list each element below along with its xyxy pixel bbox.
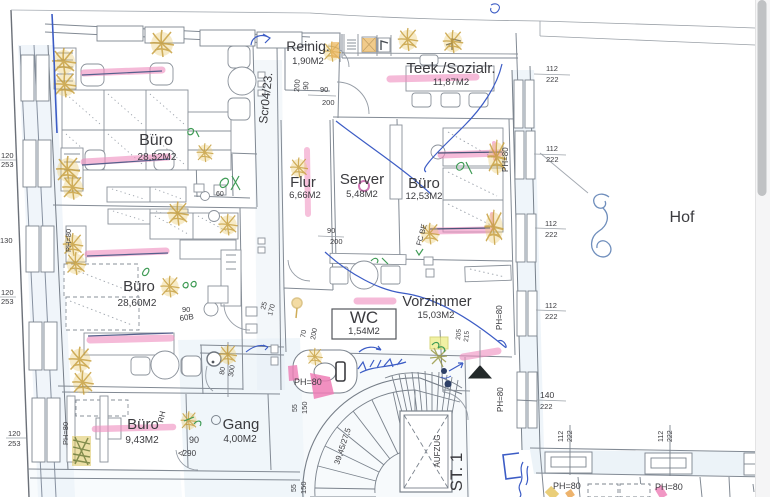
svg-text:6,66M2: 6,66M2: [289, 190, 321, 201]
svg-text:60: 60: [216, 191, 224, 198]
svg-text:80: 80: [219, 366, 227, 375]
svg-text:130: 130: [0, 236, 13, 245]
svg-text:4,00M2: 4,00M2: [223, 434, 257, 445]
svg-text:Büro: Büro: [139, 132, 173, 149]
svg-text:112: 112: [558, 431, 565, 442]
svg-text:90: 90: [301, 81, 311, 90]
svg-text:11,87M2: 11,87M2: [433, 77, 469, 88]
svg-text:PH=80: PH=80: [64, 229, 73, 252]
svg-text:205: 205: [455, 328, 463, 340]
svg-text:140: 140: [540, 390, 554, 400]
svg-text:Büro: Büro: [127, 416, 159, 433]
svg-text:Teek./Sozialr.: Teek./Sozialr.: [406, 60, 495, 77]
svg-text:222: 222: [546, 75, 559, 84]
svg-text:120: 120: [1, 288, 14, 297]
svg-text:9,43M2: 9,43M2: [125, 435, 159, 446]
svg-text:Büro: Büro: [123, 278, 155, 295]
svg-text:15,03M2: 15,03M2: [418, 310, 455, 321]
svg-text:PH=80: PH=80: [495, 305, 504, 330]
svg-text:12,53M2: 12,53M2: [406, 191, 443, 202]
svg-text:WC: WC: [350, 308, 378, 327]
svg-text:90: 90: [189, 435, 199, 445]
svg-text:112: 112: [658, 431, 665, 442]
svg-text:90: 90: [182, 305, 190, 314]
svg-text:PH=80: PH=80: [501, 147, 510, 172]
svg-text:5,48M2: 5,48M2: [346, 189, 378, 200]
svg-text:150: 150: [299, 481, 308, 494]
svg-text:28,52M2: 28,52M2: [138, 152, 177, 163]
svg-text:253: 253: [1, 297, 14, 306]
svg-text:AUFZUG: AUFZUG: [433, 435, 442, 468]
svg-text:150: 150: [300, 401, 309, 414]
svg-text:ST. 1: ST. 1: [447, 453, 466, 492]
svg-text:55: 55: [292, 404, 299, 412]
svg-text:222: 222: [545, 312, 558, 321]
svg-text:112: 112: [546, 64, 558, 73]
svg-text:222: 222: [540, 402, 553, 411]
svg-text:90: 90: [327, 226, 335, 235]
svg-text:120: 120: [1, 151, 14, 160]
svg-text:222: 222: [567, 430, 574, 442]
svg-text:28,60M2: 28,60M2: [118, 298, 157, 309]
svg-text:Server: Server: [340, 171, 384, 188]
svg-text:≮290: ≮290: [178, 449, 197, 458]
svg-text:222: 222: [546, 155, 559, 164]
svg-text:200: 200: [322, 98, 335, 107]
svg-text:PH=80: PH=80: [655, 482, 683, 492]
svg-text:112: 112: [545, 301, 557, 310]
svg-text:112: 112: [545, 219, 557, 228]
svg-text:1,54M2: 1,54M2: [348, 326, 380, 337]
svg-text:Hof: Hof: [670, 209, 695, 226]
svg-text:253: 253: [1, 160, 14, 169]
svg-text:222: 222: [545, 230, 558, 239]
svg-text:222: 222: [667, 430, 674, 442]
svg-text:PH=80: PH=80: [496, 387, 505, 412]
svg-text:PH=80: PH=80: [553, 481, 581, 491]
svg-text:1,90M2: 1,90M2: [292, 56, 324, 67]
svg-text:Gang: Gang: [223, 416, 260, 433]
svg-text:200: 200: [330, 237, 343, 246]
svg-text:Flur: Flur: [290, 174, 316, 191]
svg-text:90: 90: [320, 85, 328, 94]
svg-text:70: 70: [300, 329, 308, 338]
svg-text:253: 253: [8, 439, 21, 448]
svg-text:Reinig.: Reinig.: [286, 38, 330, 54]
svg-text:112: 112: [546, 144, 558, 153]
svg-text:120: 120: [8, 429, 21, 438]
svg-text:55: 55: [291, 484, 298, 492]
svg-text:PH=80: PH=80: [294, 377, 322, 387]
svg-text:Büro: Büro: [408, 175, 440, 192]
svg-text:215: 215: [463, 330, 471, 342]
svg-text:PH=80: PH=80: [61, 422, 70, 445]
svg-text:Vorzimmer: Vorzimmer: [402, 294, 471, 310]
